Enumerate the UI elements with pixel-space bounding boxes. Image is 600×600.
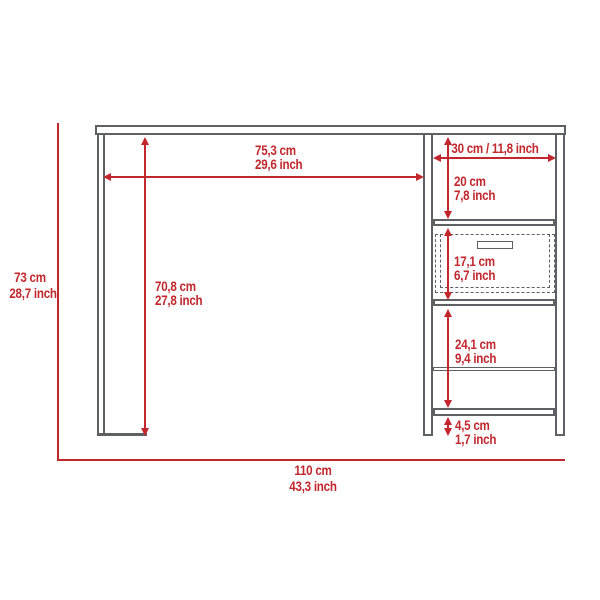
- dim-line: [57, 459, 565, 461]
- dim-label-top-cubby-height: 20 cm 7,8 inch: [454, 175, 495, 202]
- dim-label-knee-space-height: 70,8 cm 27,8 inch: [155, 280, 202, 307]
- dim-label-overall-height: 73 cm 28,7 inch: [9, 271, 50, 300]
- dim-label-lower-cubby-height: 24,1 cm 9,4 inch: [455, 338, 496, 365]
- arrowhead-left-icon: [433, 154, 441, 162]
- side-unit-shelf-top: [433, 219, 555, 226]
- drawer-handle: [477, 241, 513, 249]
- dim-line: [144, 142, 146, 430]
- desk-top: [95, 125, 566, 135]
- dim-line: [57, 123, 59, 461]
- dim-label-desktop-clear-width: 75,3 cm 29,6 inch: [255, 144, 302, 171]
- arrowhead-right-icon: [416, 173, 424, 181]
- arrowhead-down-icon: [141, 428, 149, 436]
- dim-line: [440, 157, 548, 159]
- side-unit-right-panel: [555, 135, 565, 436]
- dim-label-foot-clearance: 4,5 cm 1,7 inch: [455, 419, 496, 446]
- side-unit-shelf-middle: [433, 367, 555, 371]
- side-unit-shelf-below-drawer: [433, 299, 555, 306]
- arrowhead-down-icon: [444, 428, 452, 436]
- dim-label-side-unit-width: 30 cm / 11,8 inch: [442, 142, 549, 156]
- dim-line: [110, 176, 418, 178]
- arrowhead-down-icon: [444, 211, 452, 219]
- side-unit-left-panel: [423, 135, 433, 436]
- dim-line: [447, 314, 449, 403]
- side-unit-shelf-bottom: [433, 408, 555, 416]
- arrowhead-up-icon: [444, 309, 452, 317]
- dimension-diagram: 75,3 cm 29,6 inch 70,8 cm 27,8 inch 30 c…: [0, 0, 600, 600]
- dim-label-overall-width: 110 cm 43,3 inch: [266, 464, 361, 493]
- dim-label-drawer-height: 17,1 cm 6,7 inch: [454, 255, 495, 282]
- arrowhead-up-icon: [444, 228, 452, 236]
- arrowhead-up-icon: [141, 137, 149, 145]
- arrowhead-down-icon: [444, 292, 452, 300]
- arrowhead-right-icon: [548, 154, 556, 162]
- dim-line: [447, 233, 449, 295]
- arrowhead-left-icon: [103, 173, 111, 181]
- left-panel-foot-line: [97, 433, 147, 436]
- arrowhead-down-icon: [444, 400, 452, 408]
- arrowhead-up-icon: [444, 417, 452, 425]
